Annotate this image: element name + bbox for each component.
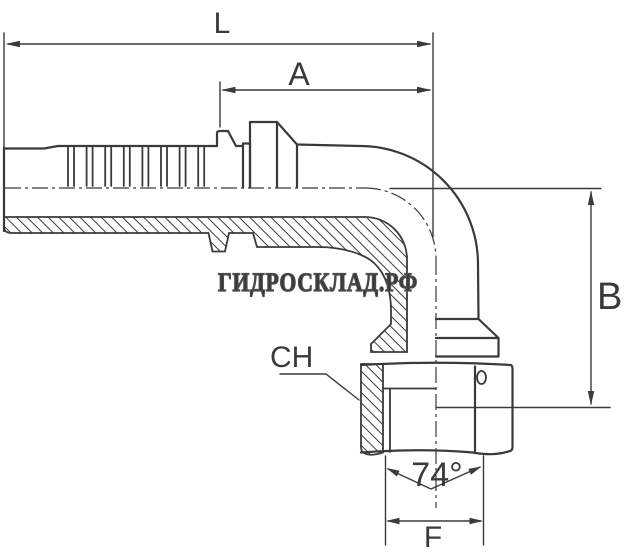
collar-hex-block	[250, 122, 297, 187]
section-hatching	[4, 217, 407, 455]
dim-label-cone-angle: 74°	[411, 456, 462, 494]
leader-CH	[280, 374, 359, 400]
technical-drawing: L A B CH 74° F ГИДРОСКЛАД.РФ	[0, 0, 639, 560]
arrow-L-right	[417, 41, 432, 47]
arrow-L-left	[6, 41, 21, 47]
elbow-top-edge	[297, 145, 360, 147]
collar-stop-ring	[217, 131, 243, 146]
arrow-A-right	[417, 87, 432, 93]
watermark: ГИДРОСКЛАД.РФ	[218, 268, 418, 297]
nut-top-edge	[361, 363, 511, 365]
dim-label-F: F	[424, 521, 442, 554]
arrow-cone-right	[468, 467, 481, 475]
arrow-F-left	[386, 518, 400, 524]
hatch-band-nut-wall	[361, 364, 383, 455]
arrow-F-right	[470, 518, 484, 524]
arrow-B-top	[588, 191, 594, 206]
dim-label-CH: CH	[270, 341, 313, 374]
thread-collar	[436, 319, 499, 357]
nut-dimple	[477, 371, 486, 384]
arrow-A-left	[221, 87, 236, 93]
arrow-cone-left	[387, 468, 400, 477]
fitting-diagram: L A B CH 74° F ГИДРОСКЛАД.РФ	[0, 0, 639, 560]
dim-label-L: L	[214, 7, 231, 40]
nut-internal-shoulder	[383, 389, 436, 453]
dim-label-A: A	[288, 56, 310, 92]
arrow-B-bottom	[588, 391, 594, 406]
tail-barb-grooves	[68, 146, 204, 186]
dim-label-B: B	[597, 276, 622, 318]
